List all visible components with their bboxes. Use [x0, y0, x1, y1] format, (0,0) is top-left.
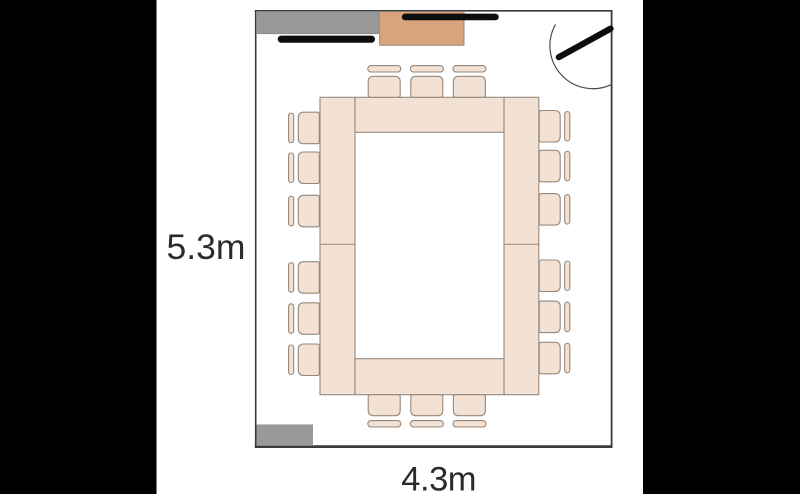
svg-text:4.3m: 4.3m	[401, 461, 476, 494]
svg-text:5.3m: 5.3m	[167, 227, 246, 267]
